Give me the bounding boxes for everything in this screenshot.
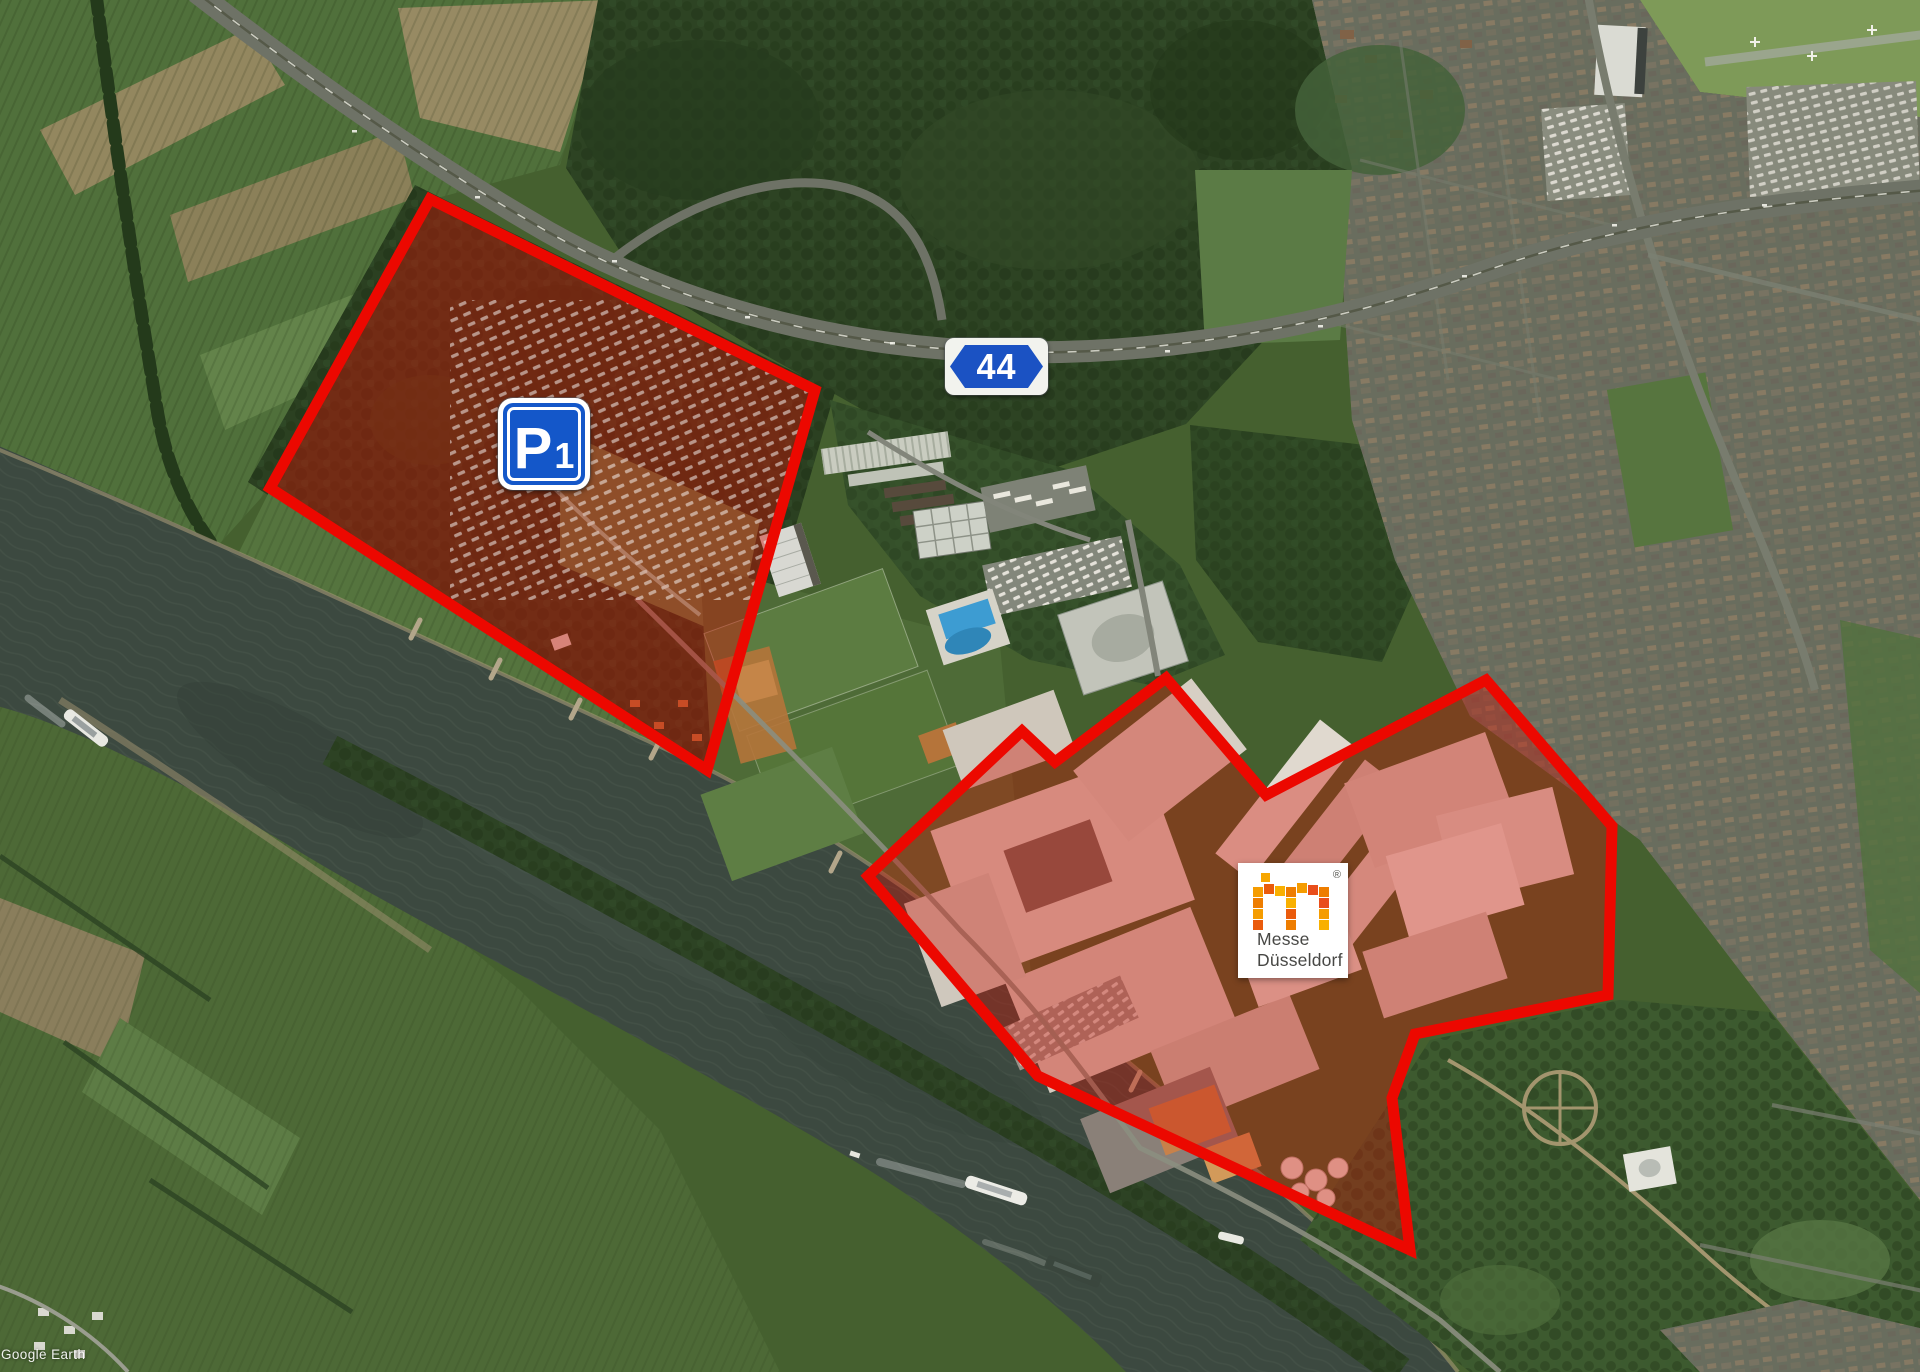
messe-pixel-m-logo-icon bbox=[1252, 871, 1330, 931]
registered-trademark: ® bbox=[1333, 869, 1341, 881]
parking-p1-sign: P1 bbox=[498, 398, 590, 490]
map-canvas[interactable]: P1 44 ® bbox=[0, 0, 1920, 1372]
parking-sign-panel: P1 bbox=[503, 403, 585, 485]
autobahn-a44-sign: 44 bbox=[945, 338, 1048, 395]
parking-sign-letter: P bbox=[514, 420, 553, 478]
messe-duesseldorf-logo-card: ® Messe Düsseldorf bbox=[1238, 863, 1348, 978]
autobahn-number: 44 bbox=[948, 338, 1046, 395]
parking-sign-number: 1 bbox=[554, 438, 574, 474]
brand-line-1: Messe bbox=[1257, 929, 1343, 950]
modular-building bbox=[913, 501, 991, 559]
google-earth-watermark: Google Earth bbox=[1, 1347, 85, 1362]
brand-line-2: Düsseldorf bbox=[1257, 950, 1343, 971]
satellite-imagery bbox=[0, 0, 1920, 1372]
